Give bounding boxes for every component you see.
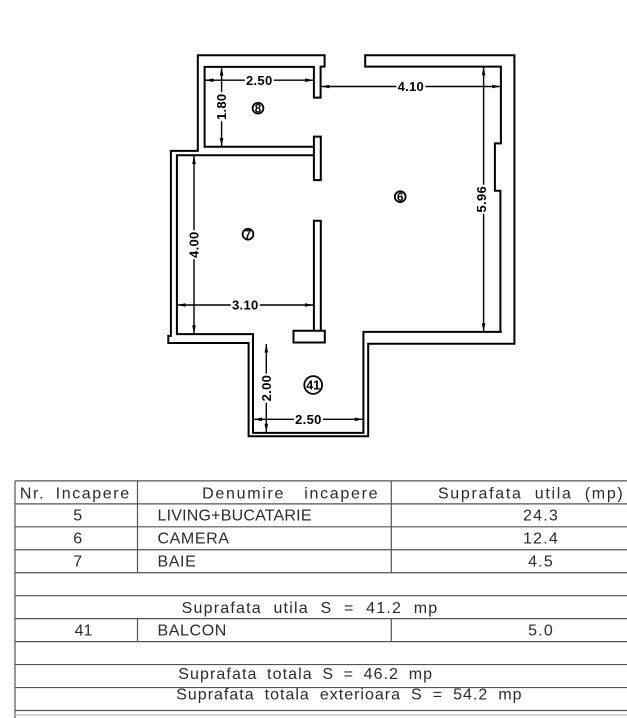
svg-text:6: 6: [397, 192, 403, 204]
svg-text:2.50: 2.50: [295, 412, 322, 427]
svg-text:24.3: 24.3: [523, 508, 559, 525]
svg-text:1.80: 1.80: [214, 94, 229, 121]
svg-text:CAMERA: CAMERA: [158, 531, 230, 548]
svg-text:7: 7: [73, 554, 82, 571]
svg-text:4.10: 4.10: [398, 79, 425, 94]
svg-text:5.0: 5.0: [528, 623, 554, 640]
svg-text:LIVING+BUCATARIE: LIVING+BUCATARIE: [158, 508, 312, 525]
svg-text:Suprafata totala exterioara S: Suprafata totala exterioara S = 54.2 mp: [176, 687, 522, 704]
svg-text:12.4: 12.4: [523, 531, 559, 548]
svg-text:5.96: 5.96: [474, 186, 489, 213]
svg-text:4.5: 4.5: [528, 554, 554, 571]
svg-text:BAIE: BAIE: [158, 554, 197, 571]
svg-text:5: 5: [73, 508, 82, 525]
svg-text:3.10: 3.10: [232, 298, 259, 313]
svg-text:Suprafata utila S = 41.2 mp: Suprafata utila S = 41.2 mp: [182, 600, 439, 617]
svg-text:Denumire incapere: Denumire incapere: [202, 485, 379, 502]
svg-text:6: 6: [73, 531, 82, 548]
svg-text:Suprafata utila (mp): Suprafata utila (mp): [438, 485, 625, 502]
svg-text:BALCON: BALCON: [158, 623, 227, 640]
svg-text:2.50: 2.50: [246, 73, 273, 88]
svg-text:7: 7: [245, 229, 251, 241]
svg-text:8: 8: [255, 103, 262, 115]
svg-text:41: 41: [306, 379, 320, 393]
svg-text:Nr. Incapere: Nr. Incapere: [20, 485, 131, 502]
svg-text:Suprafata totala S = 46.2 mp: Suprafata totala S = 46.2 mp: [178, 666, 433, 683]
svg-text:41: 41: [75, 623, 93, 640]
svg-text:4.00: 4.00: [187, 231, 202, 258]
svg-text:2.00: 2.00: [259, 375, 274, 402]
